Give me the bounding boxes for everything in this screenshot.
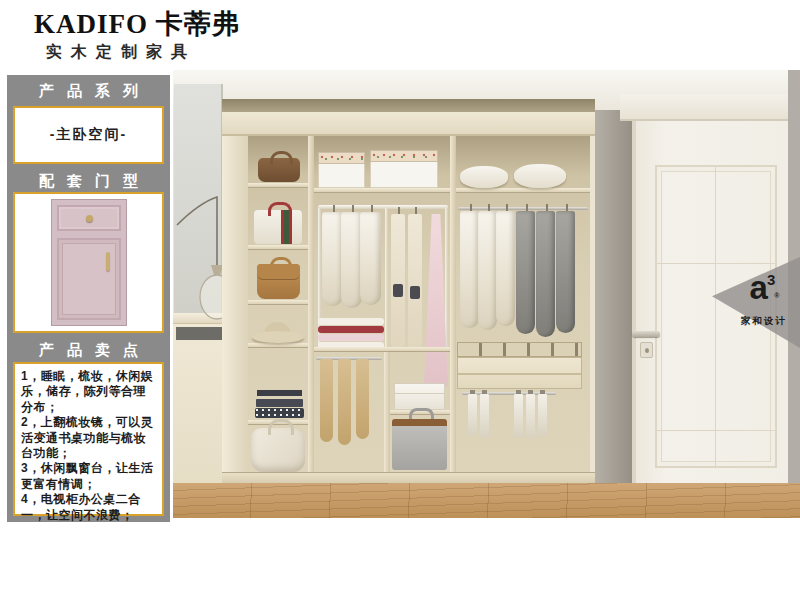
clothes-rod (318, 205, 448, 209)
hanging-scarf (356, 359, 369, 439)
vertical-divider (308, 136, 314, 472)
ceiling-beam (620, 94, 800, 121)
hanging-shirt (478, 211, 497, 330)
shelf (248, 300, 308, 305)
hanging-pants (514, 394, 523, 437)
hanging-shirt (341, 212, 362, 308)
pillow (460, 166, 508, 188)
sidebar-panel: 产品系列 -主卧空间- 配套门型 产品卖点 1，睡眠，梳妆，休闲娱乐，储存，陈列… (7, 75, 170, 522)
vertical-divider (450, 136, 456, 472)
pillow (514, 164, 566, 188)
section-title-door-type: 配套门型 (7, 172, 170, 191)
striped-bag (254, 210, 302, 244)
shelf (314, 188, 450, 193)
shelf (248, 183, 308, 188)
shelf (456, 188, 590, 193)
selling-points-box: 1，睡眠，梳妆，休闲娱乐，储存，陈列等合理分布； 2，上翻梳妆镜，可以灵活变通书… (13, 362, 164, 516)
wood-floor (173, 483, 800, 518)
wardrobe-interior (248, 136, 590, 472)
tan-handbag (257, 264, 300, 299)
series-value: -主卧空间- (50, 126, 127, 144)
floral-storage-box (370, 150, 438, 188)
selling-point: 4，电视柜办公桌二合一，让空间不浪费； (21, 492, 156, 523)
hanging-shirt (496, 211, 515, 326)
cream-handbag (251, 428, 305, 472)
selling-point: 3，休闲飘窗台，让生活更富有情调； (21, 461, 156, 492)
section-title-series: 产品系列 (7, 82, 170, 101)
wardrobe-side-panel (222, 112, 248, 483)
floral-storage-box (318, 152, 365, 188)
hanging-suit (556, 211, 575, 333)
drawer-unit (457, 357, 582, 389)
folded-clothes-pile (318, 318, 384, 350)
straw-hat-brim (252, 331, 304, 343)
hanging-scarf (320, 359, 333, 442)
wardrobe-top-frame (222, 112, 595, 136)
shelf (248, 245, 308, 250)
brand-name: KADIFO 卡蒂弗 (34, 6, 240, 42)
hanging-pants (468, 394, 477, 436)
rod-leg (445, 208, 448, 347)
cabinet-drawer (57, 205, 121, 231)
pink-cabinet-door-image (51, 199, 127, 326)
hanging-scarf (338, 359, 351, 445)
door-lock (640, 342, 653, 358)
brand-subtitle: 实木定制家具 (46, 42, 196, 63)
section-title-selling-points: 产品卖点 (7, 341, 170, 360)
brown-handbag (258, 158, 300, 182)
hanging-dress (391, 214, 405, 350)
drawer-knob (86, 215, 93, 222)
fabric-basket (392, 419, 447, 470)
wall-pillar (595, 110, 632, 483)
hanging-shirt (460, 211, 479, 328)
clothes-rod (458, 207, 588, 210)
accessory-rack (457, 342, 582, 357)
selling-point: 1，睡眠，梳妆，休闲娱乐，储存，陈列等合理分布； (21, 369, 156, 415)
hanging-shirt (322, 212, 343, 306)
hanging-pants (538, 394, 547, 436)
cabinet-door (57, 238, 121, 320)
hanging-suit (536, 211, 555, 337)
selling-point: 2，上翻梳妆镜，可以灵活变通书桌功能与梳妆台功能； (21, 415, 156, 461)
logo-caption: 家和设计 (729, 315, 799, 328)
showroom-photo: a3® 家和设计 (173, 70, 800, 518)
hanging-dress (408, 214, 422, 352)
watermark-logo: a3® 家和设计 (729, 262, 799, 328)
folded-clothes-stack (255, 408, 304, 418)
shelf (248, 343, 308, 348)
white-storage-box (394, 383, 445, 410)
cabinet-handle (106, 252, 110, 271)
shelf (314, 347, 450, 352)
hanging-suit (516, 211, 535, 334)
hanging-pants (480, 394, 489, 438)
door-handle (632, 331, 660, 337)
hanging-shirt (360, 212, 381, 305)
hanging-pants (526, 394, 535, 438)
rod-leg (385, 208, 388, 347)
logo-a3: a3® (729, 262, 799, 314)
series-value-box: -主卧空间- (13, 106, 164, 164)
door-type-box (13, 192, 164, 333)
